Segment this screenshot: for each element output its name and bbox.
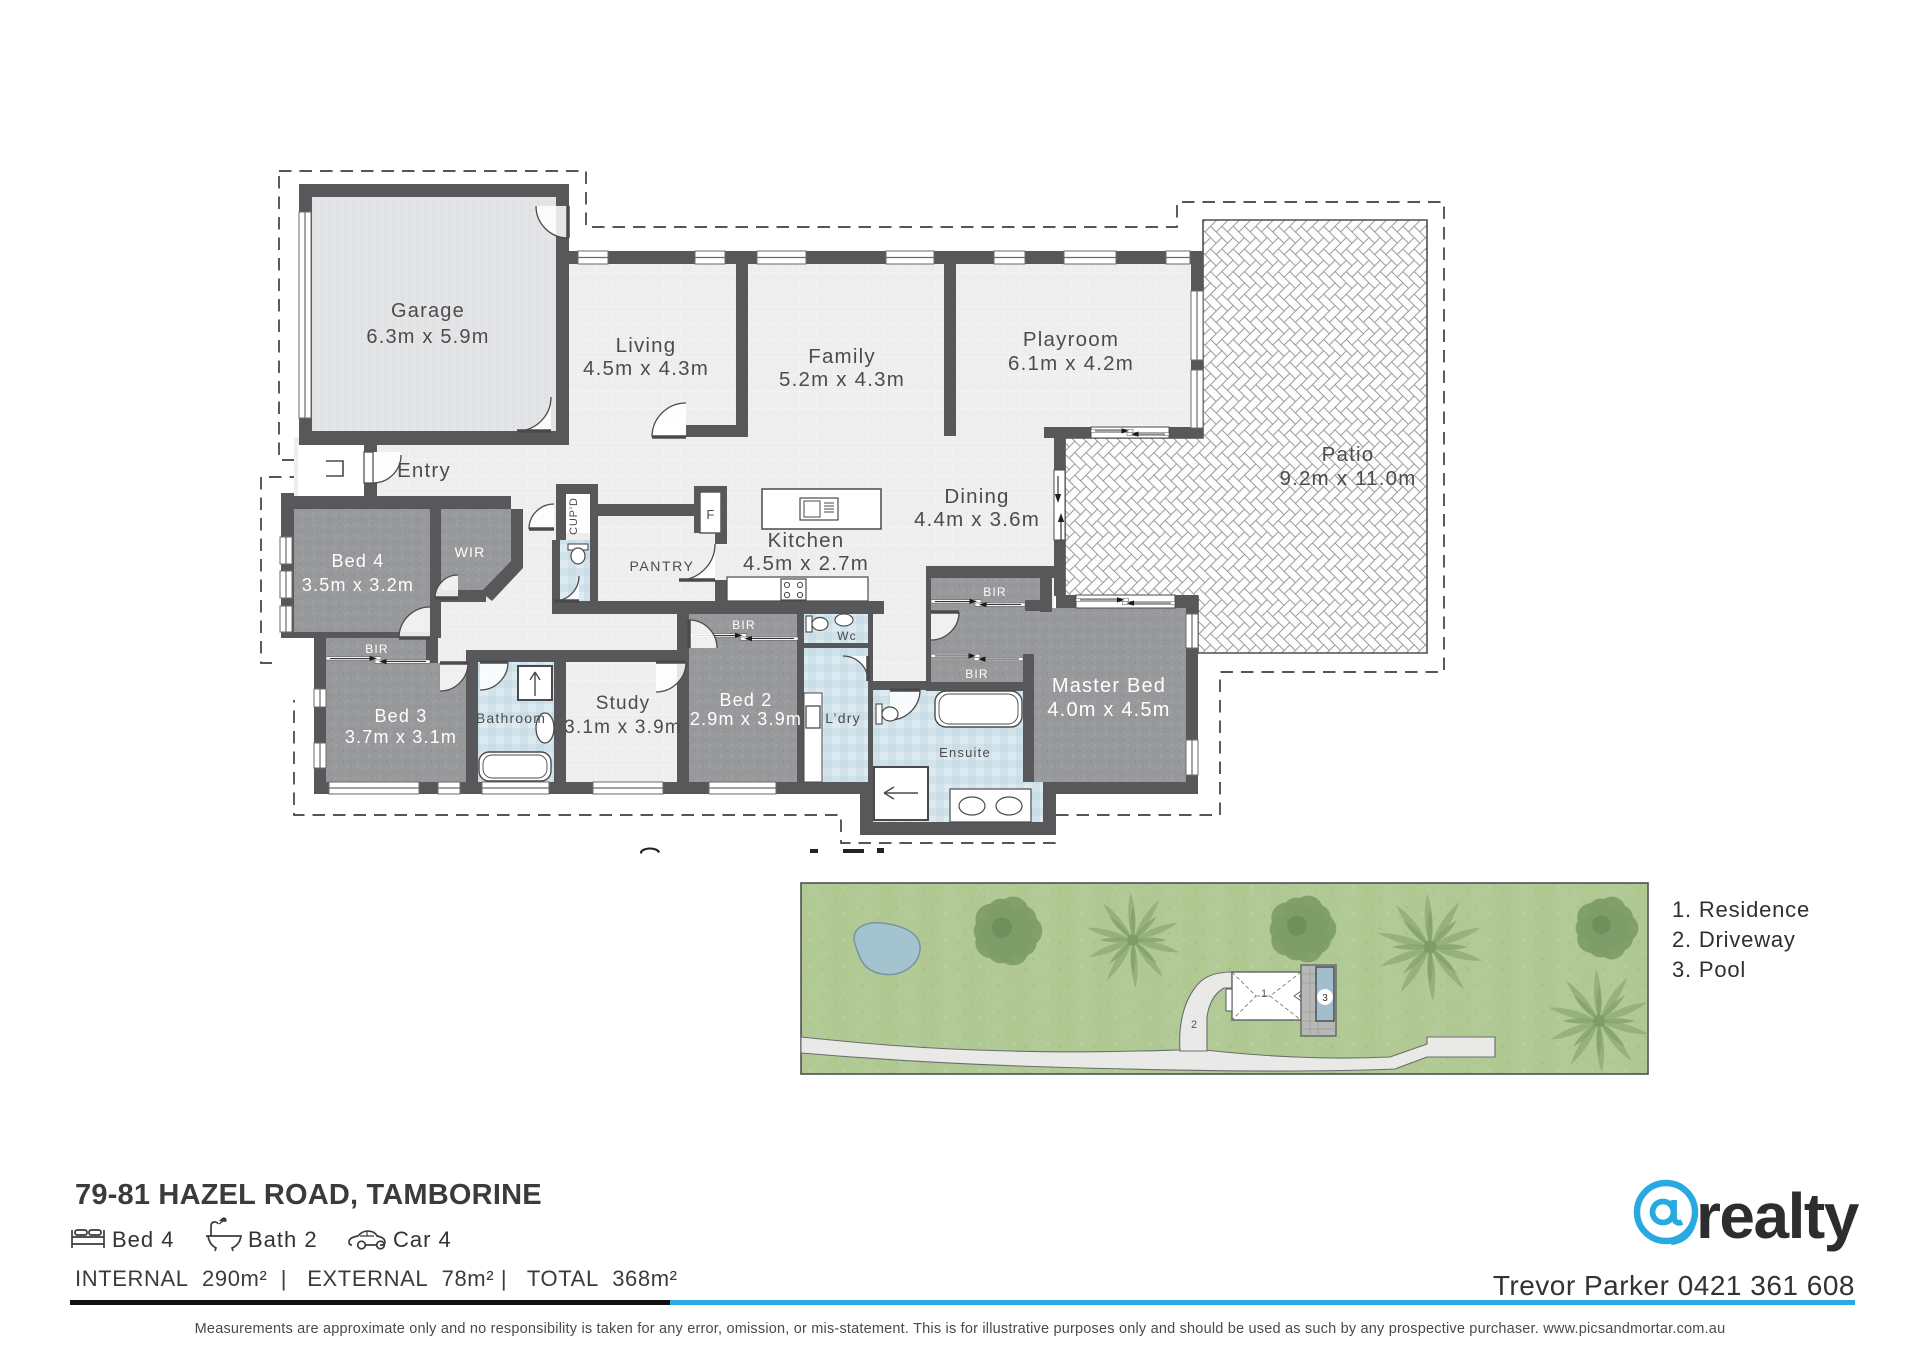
- svg-text:3. Pool: 3. Pool: [1672, 957, 1746, 982]
- svg-text:Family: Family: [808, 345, 876, 368]
- svg-text:6.3m x 5.9m: 6.3m x 5.9m: [366, 326, 489, 348]
- svg-text:4.4m x 3.6m: 4.4m x 3.6m: [914, 508, 1040, 531]
- svg-text:BIR: BIR: [965, 667, 989, 681]
- svg-text:INTERNAL 290m² | EXTERNAL: INTERNAL 290m² | EXTERNAL 78m² | TOTAL 3…: [75, 1266, 678, 1291]
- svg-text:Bath 2: Bath 2: [248, 1227, 318, 1252]
- svg-text:4.0m x 4.5m: 4.0m x 4.5m: [1047, 699, 1170, 721]
- svg-text:Living: Living: [616, 334, 677, 357]
- svg-text:2. Driveway: 2. Driveway: [1672, 927, 1796, 952]
- svg-text:79-81 HAZEL ROAD, TAMBORINE: 79-81 HAZEL ROAD, TAMBORINE: [75, 1179, 542, 1211]
- svg-text:WIR: WIR: [455, 544, 486, 560]
- svg-text:Trevor Parker 0421 361 608: Trevor Parker 0421 361 608: [1493, 1270, 1855, 1301]
- svg-text:Playroom: Playroom: [1023, 328, 1119, 351]
- svg-text:6.1m x 4.2m: 6.1m x 4.2m: [1008, 352, 1134, 375]
- svg-text:CUP’D: CUP’D: [568, 497, 580, 535]
- svg-text:4.5m x 4.3m: 4.5m x 4.3m: [583, 357, 709, 380]
- svg-text:L’dry: L’dry: [825, 710, 861, 726]
- svg-text:Kitchen: Kitchen: [768, 529, 845, 552]
- svg-text:Garage: Garage: [391, 300, 465, 322]
- svg-text:3.1m x 3.9m: 3.1m x 3.9m: [564, 717, 682, 738]
- svg-text:3: 3: [1322, 993, 1328, 1004]
- svg-text:Bathroom: Bathroom: [476, 710, 546, 726]
- svg-text:Bed 4: Bed 4: [112, 1227, 175, 1252]
- svg-text:1: 1: [1261, 988, 1267, 1000]
- svg-text:F: F: [706, 507, 715, 522]
- svg-text:2: 2: [1191, 1019, 1197, 1031]
- svg-text:Master Bed: Master Bed: [1052, 675, 1166, 697]
- svg-text:2.9m x 3.9m: 2.9m x 3.9m: [690, 709, 802, 729]
- svg-text:5.2m x 4.3m: 5.2m x 4.3m: [779, 368, 905, 391]
- svg-text:3.7m x 3.1m: 3.7m x 3.1m: [345, 727, 457, 747]
- svg-text:Bed 2: Bed 2: [719, 690, 772, 710]
- svg-text:1. Residence: 1. Residence: [1672, 897, 1810, 922]
- svg-text:PANTRY: PANTRY: [629, 558, 694, 574]
- svg-text:realty: realty: [1696, 1180, 1860, 1252]
- svg-text:Study: Study: [596, 693, 651, 714]
- svg-text:Measurements are approximate o: Measurements are approximate only and no…: [195, 1321, 1726, 1337]
- svg-text:Bed 4: Bed 4: [331, 551, 384, 571]
- svg-text:BIR: BIR: [983, 585, 1007, 599]
- svg-text:Ensuite: Ensuite: [939, 745, 991, 760]
- svg-text:3.5m x 3.2m: 3.5m x 3.2m: [302, 575, 414, 595]
- svg-text:4.5m x 2.7m: 4.5m x 2.7m: [743, 552, 869, 575]
- svg-text:BIR: BIR: [365, 642, 389, 656]
- svg-text:BIR: BIR: [732, 618, 756, 632]
- svg-text:Bed 3: Bed 3: [374, 706, 427, 726]
- svg-text:Dining: Dining: [944, 485, 1009, 508]
- svg-text:9.2m x 11.0m: 9.2m x 11.0m: [1279, 467, 1416, 490]
- svg-text:Wc: Wc: [837, 629, 857, 643]
- svg-text:Entry: Entry: [397, 459, 451, 482]
- svg-text:Car 4: Car 4: [393, 1227, 452, 1252]
- svg-text:Patio: Patio: [1322, 443, 1375, 466]
